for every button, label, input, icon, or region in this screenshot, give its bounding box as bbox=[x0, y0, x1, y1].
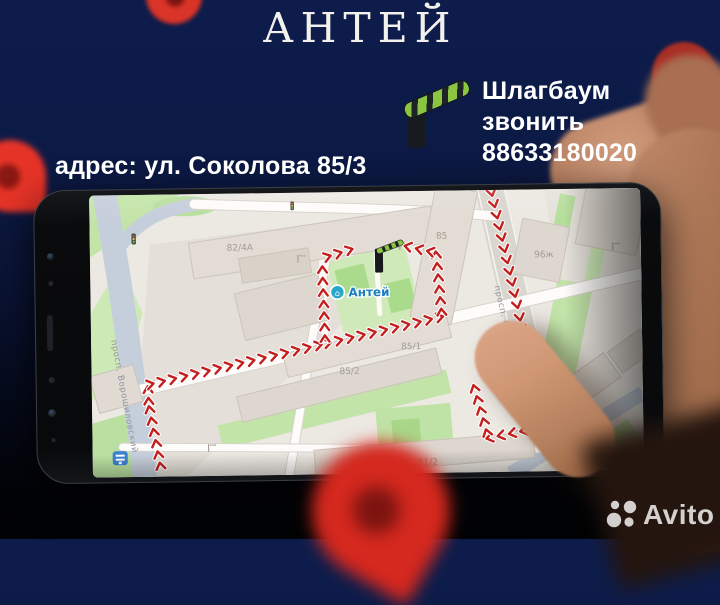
avito-wordmark: Avito bbox=[643, 499, 714, 531]
poi-antey-label: Антей bbox=[348, 285, 389, 300]
ad-background: АНТЕЙ Шлагбаум звонить 88633180020 адрес… bbox=[0, 0, 720, 539]
barrier-note: Шлагбаум звонить 88633180020 bbox=[400, 76, 720, 169]
page-title: АНТЕЙ bbox=[0, 4, 720, 52]
front-camera-icon bbox=[48, 409, 56, 417]
front-camera-icon bbox=[47, 253, 54, 260]
transit-stop-icon bbox=[113, 451, 128, 465]
building-label: 82/4А bbox=[227, 243, 254, 253]
svg-text:⌂: ⌂ bbox=[335, 289, 340, 298]
avito-logo-icon bbox=[606, 497, 640, 533]
barrier-text: Шлагбаум звонить 88633180020 bbox=[482, 76, 720, 169]
building-label: 85/2 bbox=[339, 367, 359, 377]
building-label: 85 bbox=[436, 232, 448, 242]
earpiece bbox=[47, 315, 54, 351]
barrier-arm bbox=[401, 78, 472, 121]
watermark: Avito bbox=[606, 497, 714, 533]
barrier-phone: звонить 88633180020 bbox=[482, 107, 720, 169]
sensor-dot bbox=[51, 438, 55, 442]
sensor-dot bbox=[48, 281, 53, 286]
poi-antey-marker: ⌂ Антей bbox=[330, 284, 389, 299]
address-line: адрес: ул. Соколова 85/3 bbox=[55, 152, 366, 181]
traffic-light-icon bbox=[131, 233, 136, 244]
barrier-label: Шлагбаум bbox=[482, 76, 720, 107]
sensor-dot bbox=[49, 377, 55, 383]
building-label: 85/1 bbox=[401, 342, 421, 352]
barrier-gate-icon bbox=[400, 76, 474, 150]
traffic-light-icon bbox=[290, 201, 294, 210]
map-pin-icon bbox=[0, 140, 46, 212]
building-label: 96ж bbox=[534, 250, 554, 260]
